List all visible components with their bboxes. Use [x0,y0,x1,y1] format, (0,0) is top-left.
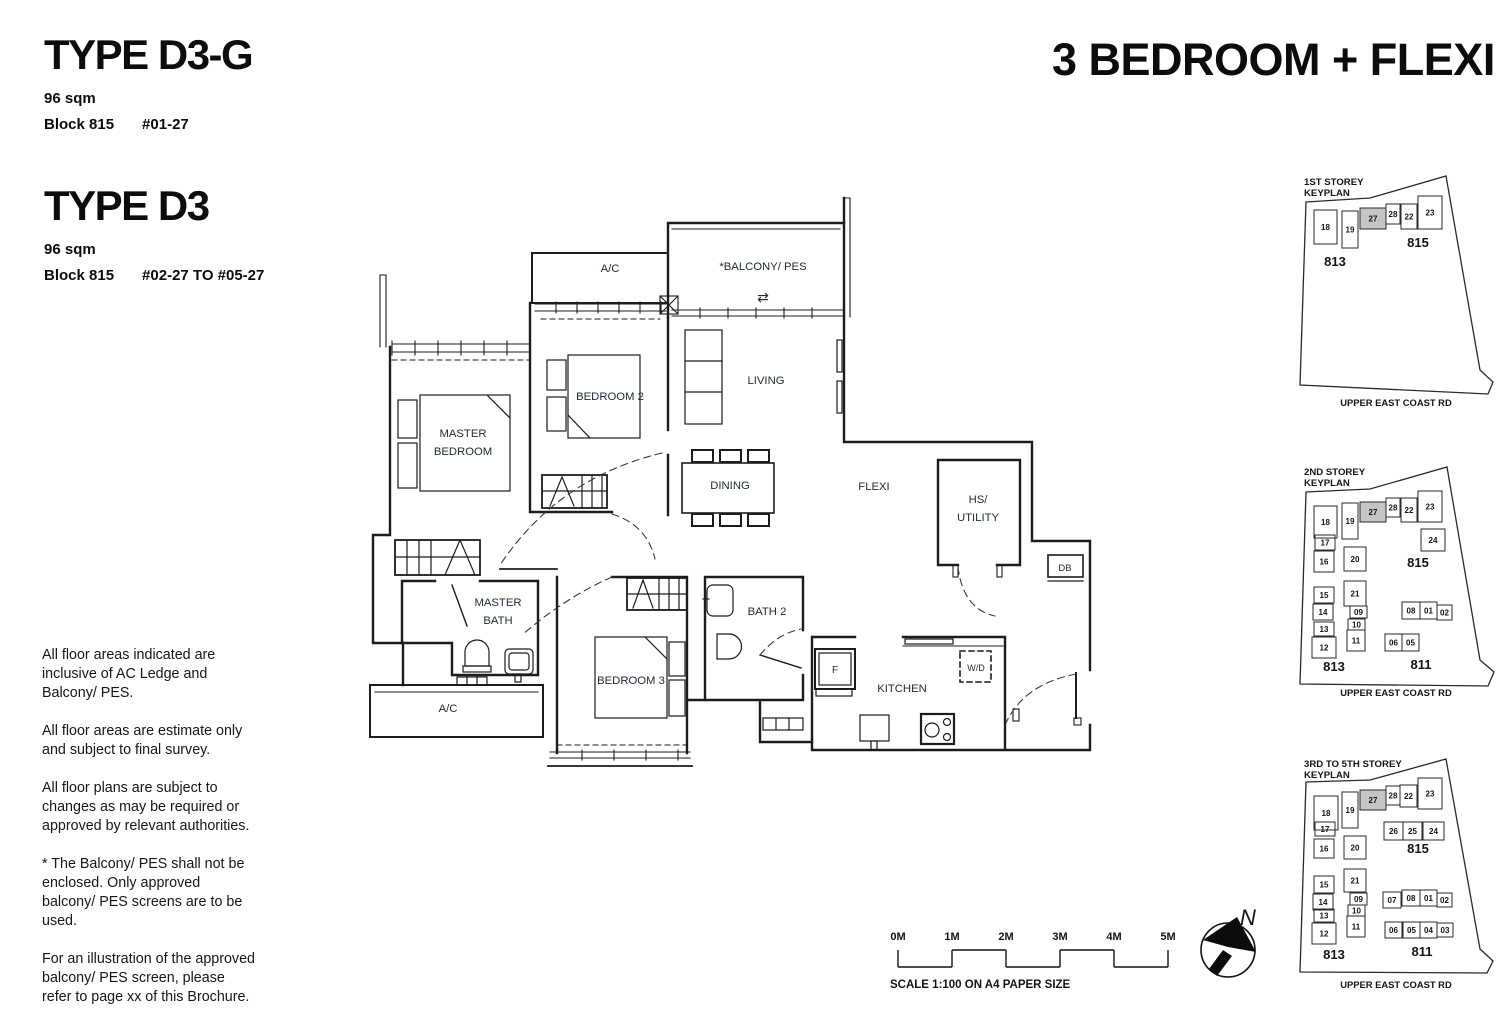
keyplan-unit-number: 19 [1346,517,1355,526]
keyplan-road-label: UPPER EAST COAST RD [1340,979,1452,990]
keyplan-3rd-5th-storey-svg: 3RD TO 5TH STOREYKEYPLAN1819272822231726… [1290,752,1502,1008]
keyplan-unit-number: 24 [1429,536,1438,545]
room-label-balcony: *BALCONY/ PES [719,261,807,273]
scalebar-caption: SCALE 1:100 ON A4 PAPER SIZE [890,979,1071,991]
room-label-flexi: FLEXI [858,481,889,493]
note-2: All floor areas are estimate only and su… [42,722,256,760]
keyplan-unit-number: 19 [1346,226,1355,235]
keyplan-1st-storey: 1ST STOREYKEYPLAN181927282223813815UPPER… [1290,166,1502,422]
unit-type-1-stack: #01-27 [142,116,189,133]
keyplan-unit-number: 22 [1405,213,1414,222]
disclaimer-notes: All floor areas indicated are inclusive … [42,646,256,1026]
keyplan-unit-number: 02 [1440,896,1449,905]
unit-type-1-name: TYPE D3-G [44,34,264,76]
category-title: 3 BEDROOM + FLEXI [1052,34,1495,86]
room-label-mbath-1: MASTER [474,597,521,609]
note-1: All floor areas indicated are inclusive … [42,646,256,703]
north-label: N [1240,905,1256,930]
keyplan-unit-number: 21 [1351,877,1360,886]
keyplan-unit-number: 03 [1441,926,1450,935]
keyplan-unit-number: 25 [1408,827,1417,836]
keyplan-unit-number: 08 [1407,894,1416,903]
keyplan-unit-number: 12 [1320,930,1329,939]
keyplan-2nd-storey-svg: 2ND STOREYKEYPLAN18192728222324171620152… [1290,456,1502,712]
keyplan-unit-number: 11 [1352,923,1361,932]
room-label-ac-bottom: A/C [439,703,458,715]
unit-type-header: TYPE D3-G 96 sqm Block 815#01-27 TYPE D3… [44,34,264,284]
keyplan-unit-number: 15 [1320,591,1329,600]
keyplan-title: 1ST STOREY [1304,177,1364,188]
room-label-master-1: MASTER [439,428,486,440]
keyplan-block-number: 811 [1412,944,1433,959]
keyplan-unit-number: 27 [1369,215,1378,224]
keyplan-unit-number: 28 [1389,792,1398,801]
scalebar-tick-label: 2M [998,931,1013,943]
keyplan-unit-number: 23 [1426,790,1435,799]
keyplan-unit-number: 17 [1321,825,1330,834]
keyplan-unit-number: 10 [1352,621,1361,630]
keyplan-2nd-storey: 2ND STOREYKEYPLAN18192728222324171620152… [1290,456,1502,712]
keyplan-road-label: UPPER EAST COAST RD [1340,397,1452,408]
keyplan-unit-number: 16 [1320,558,1329,567]
keyplan-unit-number: 18 [1322,809,1331,818]
keyplan-unit-number: 04 [1424,926,1433,935]
room-label-mbath-2: BATH [483,615,512,627]
keyplan-unit-number: 27 [1369,796,1378,805]
keyplan-unit-number: 24 [1429,827,1438,836]
keyplan-block-number: 811 [1411,657,1432,672]
room-label-bedroom2: BEDROOM 2 [576,391,644,403]
keyplan-unit-number: 14 [1319,898,1328,907]
unit-type-2-stack: #02-27 TO #05-27 [142,267,264,284]
keyplan-unit-number: 10 [1352,907,1361,916]
keyplan-block-number: 813 [1324,254,1346,269]
keyplan-unit-number: 18 [1321,223,1330,232]
note-5: For an illustration of the approved balc… [42,950,256,1007]
unit-type-2: TYPE D3 96 sqm Block 815#02-27 TO #05-27 [44,185,264,284]
balcony-slider-icon: ⇄ [757,289,769,305]
keyplan-unit-number: 06 [1389,639,1398,648]
keyplan-unit-number: 09 [1354,895,1363,904]
note-4: * The Balcony/ PES shall not be enclosed… [42,855,256,931]
unit-type-1: TYPE D3-G 96 sqm Block 815#01-27 [44,34,264,133]
scalebar-tick-label: 4M [1106,931,1121,943]
keyplan-boundary [1300,467,1494,686]
keyplan-unit-number: 21 [1351,590,1360,599]
keyplan-block-number: 815 [1407,235,1429,250]
keyplan-unit-number: 16 [1320,845,1329,854]
keyplan-unit-number: 01 [1424,607,1433,616]
scalebar-bar [898,950,1168,967]
unit-type-1-area: 96 sqm [44,90,264,107]
keyplan-unit-number: 17 [1321,539,1330,548]
room-label-hs-1: HS/ [969,494,989,506]
keyplan-unit-number: 02 [1440,609,1449,618]
keyplan-3rd-5th-storey: 3RD TO 5TH STOREYKEYPLAN1819272822231726… [1290,752,1502,1008]
keyplan-title: KEYPLAN [1304,188,1350,199]
unit-type-1-block: Block 815 [44,116,114,133]
floorplan: A/C *BALCONY/ PES ⇄ BEDROOM 2 LIVING MAS… [360,185,1110,775]
room-label-wd: W/D [967,663,985,673]
keyplan-unit-number: 09 [1354,608,1363,617]
keyplan-unit-number: 19 [1346,806,1355,815]
room-label-ac-top: A/C [601,263,620,275]
unit-type-2-name: TYPE D3 [44,185,264,227]
room-label-master-2: BEDROOM [434,446,492,458]
keyplan-unit-number: 05 [1407,926,1416,935]
keyplan-unit-number: 12 [1320,644,1329,653]
keyplan-unit-number: 05 [1406,639,1415,648]
keyplan-unit-number: 07 [1388,896,1397,905]
keyplan-unit-number: 23 [1426,503,1435,512]
keyplan-unit-number: 28 [1389,504,1398,513]
north-compass: N [1190,890,1290,1000]
brochure-page: TYPE D3-G 96 sqm Block 815#01-27 TYPE D3… [0,0,1502,1028]
keyplan-boundary [1300,176,1493,394]
keyplan-unit-number: 28 [1389,210,1398,219]
room-label-bedroom3: BEDROOM 3 [597,675,665,687]
keyplan-unit-number: 20 [1351,844,1360,853]
keyplan-unit-number: 22 [1404,792,1413,801]
keyplan-block-number: 815 [1407,555,1429,570]
room-label-hs-2: UTILITY [957,512,1000,524]
keyplan-unit-number: 27 [1369,508,1378,517]
keyplan-unit-number: 22 [1405,506,1414,515]
keyplan-road-label: UPPER EAST COAST RD [1340,687,1452,698]
keyplan-unit-number: 13 [1320,912,1329,921]
keyplan-unit-number: 06 [1389,926,1398,935]
north-compass-icon: N [1190,890,1290,1000]
keyplan-unit-number: 08 [1407,607,1416,616]
unit-type-2-block: Block 815 [44,267,114,284]
scalebar-tick-label: 1M [944,931,959,943]
keyplan-title: KEYPLAN [1304,478,1350,489]
room-label-bath2: BATH 2 [748,606,787,618]
scalebar-tick-label: 3M [1052,931,1067,943]
keyplan-unit-number: 18 [1321,518,1330,527]
room-label-kitchen: KITCHEN [877,683,927,695]
keyplan-block-number: 815 [1407,841,1429,856]
keyplan-unit-number: 01 [1424,894,1433,903]
keyplan-block-number: 813 [1323,947,1345,962]
scalebar: 0M1M2M3M4M5MSCALE 1:100 ON A4 PAPER SIZE [886,898,1186,998]
unit-type-2-area: 96 sqm [44,241,264,258]
floorplan-svg: A/C *BALCONY/ PES ⇄ BEDROOM 2 LIVING MAS… [360,185,1110,775]
keyplan-unit-number: 13 [1320,625,1329,634]
room-label-fridge: F [832,665,838,676]
room-label-dining: DINING [710,480,750,492]
keyplan-unit-number: 26 [1389,827,1398,836]
scalebar-tick-label: 5M [1160,931,1175,943]
keyplan-unit-number: 14 [1319,608,1328,617]
keyplan-unit-number: 15 [1320,881,1329,890]
keyplan-1st-storey-svg: 1ST STOREYKEYPLAN181927282223813815UPPER… [1290,166,1502,422]
scalebar-svg: 0M1M2M3M4M5MSCALE 1:100 ON A4 PAPER SIZE [886,898,1186,998]
keyplan-unit-number: 11 [1352,637,1361,646]
room-label-db: DB [1058,563,1071,574]
keyplan-unit-number: 23 [1426,209,1435,218]
furniture [395,330,1076,750]
keyplan-block-number: 813 [1323,659,1345,674]
keyplan-title: KEYPLAN [1304,770,1350,781]
keyplan-title: 2ND STOREY [1304,467,1366,478]
scalebar-tick-label: 0M [890,931,905,943]
keyplan-unit-number: 20 [1351,555,1360,564]
keyplan-title: 3RD TO 5TH STOREY [1304,759,1402,770]
note-3: All floor plans are subject to changes a… [42,779,256,836]
room-label-living: LIVING [747,375,784,387]
